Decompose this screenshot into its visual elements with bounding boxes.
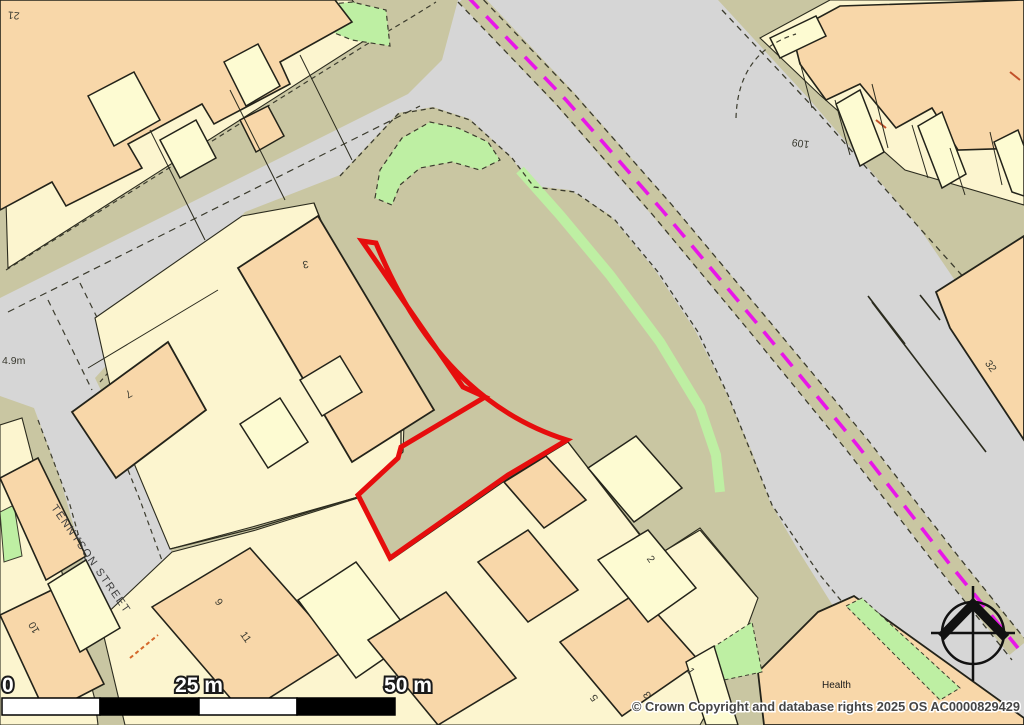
scale-label-25: 25 m [175, 674, 223, 697]
map-viewport[interactable]: 21 109 4.9m 7 3 TENNYSON STREET 9 11 10 … [0, 0, 1024, 725]
scale-label-50: 50 m [384, 674, 432, 697]
map-canvas[interactable]: 21 109 4.9m 7 3 TENNYSON STREET 9 11 10 … [0, 0, 1024, 725]
label-house-21: 21 [7, 8, 20, 21]
label-depth: 4.9m [2, 355, 26, 367]
copyright-attribution: © Crown Copyright and database rights 20… [632, 699, 1020, 714]
label-health: Health [822, 680, 851, 691]
label-house-109: 109 [791, 136, 810, 150]
scale-label-0: 0 [2, 674, 14, 697]
